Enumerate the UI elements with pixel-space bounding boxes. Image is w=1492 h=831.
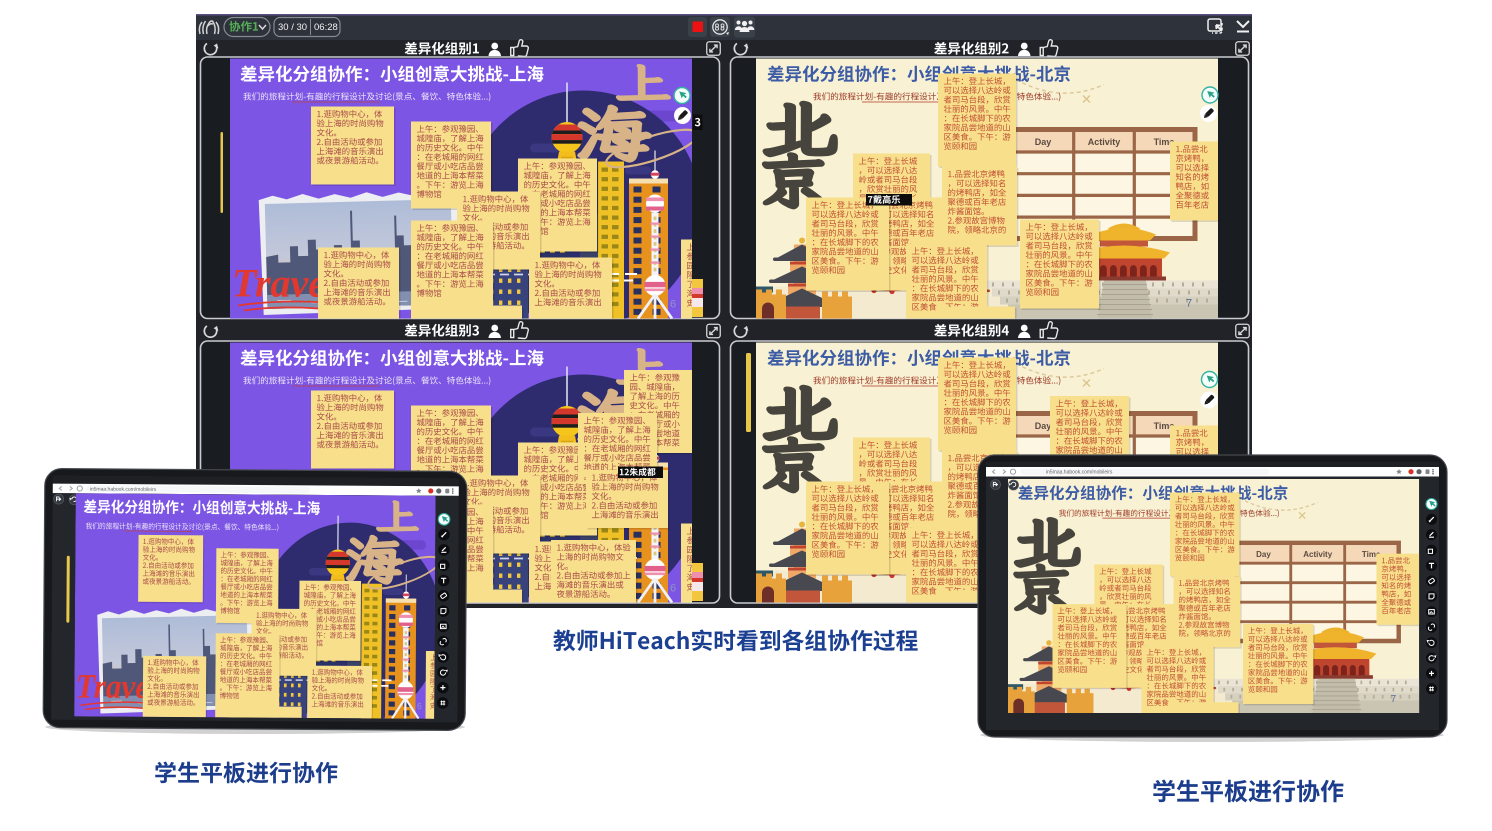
svg-text:30 / 30: 30 / 30 xyxy=(278,22,307,33)
svg-text:in5maa.habook.com/mobileirs: in5maa.habook.com/mobileirs xyxy=(1046,470,1113,476)
svg-text:in5maa.habook.com/mobileirs: in5maa.habook.com/mobileirs xyxy=(90,486,157,492)
svg-text:06:28: 06:28 xyxy=(314,22,338,33)
